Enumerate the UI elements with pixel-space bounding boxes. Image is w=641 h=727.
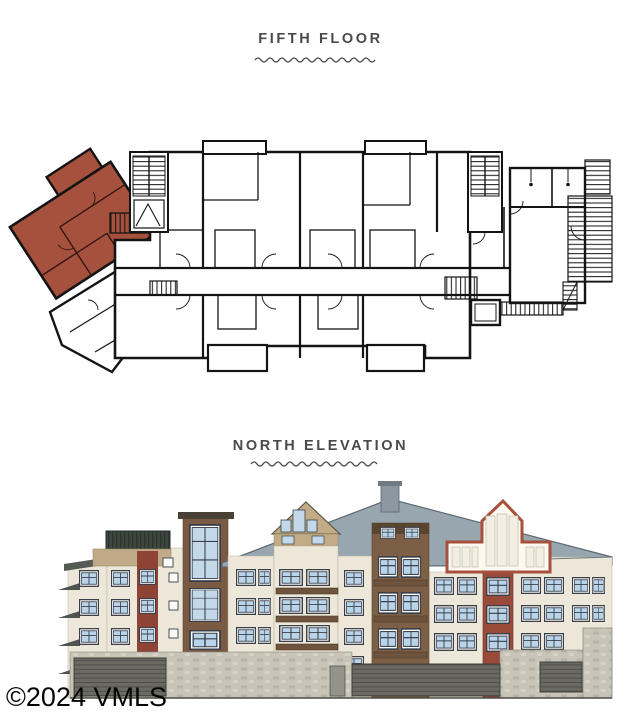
deck-bottom-2 [367, 345, 424, 371]
north-elevation-drawing [58, 481, 612, 698]
balcony-top-1 [203, 141, 266, 154]
title-squiggle-elev [251, 462, 377, 466]
stairwell-b [468, 152, 502, 244]
stairs-mid-2 [445, 277, 477, 299]
garage-right [540, 662, 582, 692]
stairwell-a [130, 152, 168, 232]
walkway [500, 302, 563, 315]
drawings-canvas [0, 0, 641, 727]
entry-door [330, 666, 345, 696]
center-gable [272, 502, 340, 546]
listing-image: FIFTH FLOOR NORTH ELEVATION [0, 0, 641, 727]
deck-bottom-1 [208, 345, 267, 371]
title-squiggle-floor [255, 58, 375, 62]
balcony-top-2 [365, 141, 426, 154]
elevator-shaft [471, 300, 500, 325]
stairs-mid [150, 281, 177, 295]
roofdeck-railing [106, 531, 170, 549]
fifth-floor-plan [0, 141, 612, 372]
watermark: ©2024 VMLS [6, 682, 167, 713]
garage-center [352, 664, 500, 696]
tan-band [93, 549, 171, 566]
chimney [381, 484, 399, 512]
